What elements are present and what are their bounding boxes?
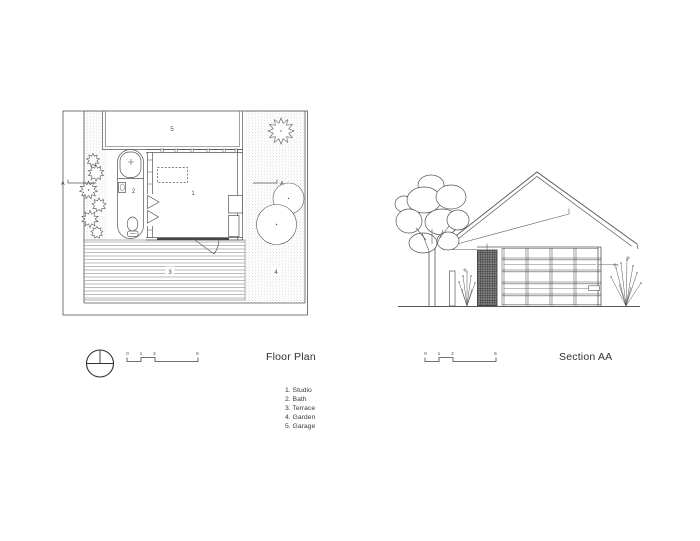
- legend-item-garden: 4. Garden: [285, 413, 315, 422]
- scale-tick: 5: [196, 351, 199, 357]
- architectural-drawing-sheet: A A 5 2 1 3 4: [0, 0, 700, 541]
- scale-bar-floor-plan: 0 1 2 5: [126, 351, 199, 361]
- scale-tick: 1: [438, 351, 441, 357]
- scale-tick: 2: [451, 351, 454, 357]
- shelf-tab: [589, 286, 600, 291]
- studio-south-sill: [157, 238, 229, 240]
- legend-item-garage: 5. Garage: [285, 422, 315, 431]
- legend-item-bath: 2. Bath: [285, 395, 315, 404]
- north-indicator: [87, 350, 114, 377]
- studio-room: [146, 149, 243, 254]
- scale-tick: 0: [424, 351, 427, 357]
- room-label-garage: 5: [170, 127, 174, 133]
- room-legend: 1. Studio 2. Bath 3. Terrace 4. Garden 5…: [285, 386, 315, 431]
- bath-room: [118, 150, 144, 239]
- section-post: [450, 271, 456, 306]
- studio-west-wall: [148, 153, 153, 238]
- room-label-studio: 1: [191, 191, 195, 197]
- floor-plan-drawing: A A 5 2 1 3 4: [61, 111, 308, 315]
- section-plants-left: [458, 268, 475, 306]
- interior-door-swing-lower: [148, 211, 159, 224]
- section-tree: [395, 175, 469, 307]
- section-door: [478, 244, 498, 307]
- section-marker-a-right: A: [280, 181, 284, 187]
- scale-tick: 5: [494, 351, 497, 357]
- scale-tick: 2: [153, 351, 156, 357]
- section-drawing: [395, 172, 642, 307]
- tree-trunk: [429, 249, 435, 307]
- interior-door-swing-upper: [148, 196, 160, 209]
- floor-plan-title: Floor Plan: [266, 351, 316, 363]
- studio-north-wall: [146, 150, 243, 153]
- scale-tick: 1: [140, 351, 143, 357]
- studio-table-dashed: [158, 168, 188, 183]
- studio-east-fixture-upper: [229, 196, 243, 214]
- toilet-bowl: [127, 217, 138, 231]
- studio-east-fixture-lower: [229, 216, 240, 237]
- section-marker-a-left: A: [61, 181, 65, 187]
- section-wall-grid: [502, 247, 618, 306]
- bathtub: [120, 152, 141, 178]
- scale-bar-section: 0 1 2 5: [424, 351, 497, 361]
- scale-tick: 0: [126, 351, 129, 357]
- drawing-canvas: A A 5 2 1 3 4: [0, 0, 700, 541]
- legend-item-terrace: 3. Terrace: [285, 404, 315, 413]
- section-roof: [443, 172, 638, 250]
- legend-item-studio: 1. Studio: [285, 386, 315, 395]
- terrace-deck: [84, 240, 245, 300]
- section-title: Section AA: [559, 351, 612, 363]
- section-plants-right: [610, 256, 641, 306]
